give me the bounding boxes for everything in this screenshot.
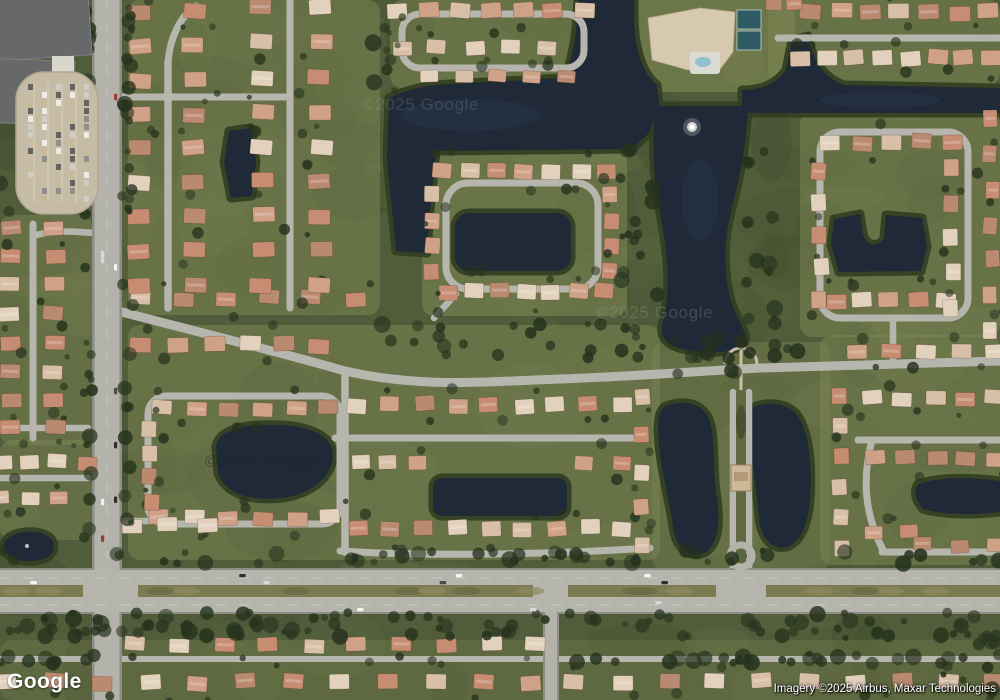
google-logo[interactable]: Google <box>7 670 82 694</box>
imagery-attribution: Imagery ©2025 Airbus, Maxar Technologies <box>774 683 996 695</box>
map-viewport[interactable]: ©2025 Google ©2025 Google ©2025 Google G… <box>0 0 1000 700</box>
satellite-imagery-canvas <box>0 0 1000 700</box>
